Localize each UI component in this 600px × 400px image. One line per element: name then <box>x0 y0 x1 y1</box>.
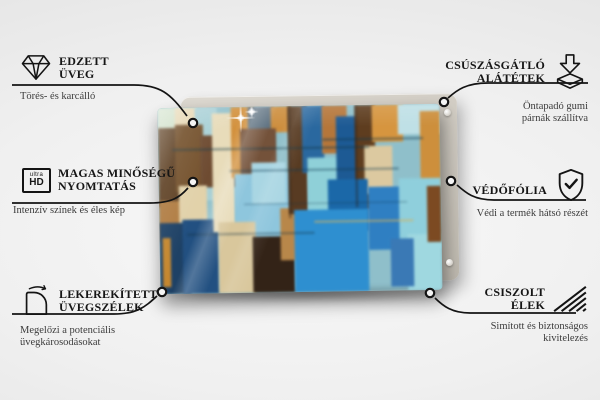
glass-panel <box>158 104 443 294</box>
polished-edges-icon <box>552 285 588 313</box>
callout-title: CSISZOLT ÉLEK <box>484 286 545 312</box>
callout-subtext: Simított és biztonságos kivitelezés <box>484 321 588 344</box>
callout-title: LEKEREKÍTETT ÜVEGSZÉLEK <box>59 288 157 314</box>
callout-tempered-glass: EDZETT ÜVEG Törés- és karcálló <box>20 53 109 103</box>
rounded-corners-icon <box>20 285 52 317</box>
shield-check-icon <box>554 168 588 202</box>
callout-title: CSÚSZÁSGÁTLÓ ALÁTÉTEK <box>445 59 545 85</box>
callout-title: EDZETT ÜVEG <box>59 55 109 81</box>
callout-title: VÉDŐFÓLIA <box>473 184 547 197</box>
glass-reflection <box>158 104 443 294</box>
diamond-icon <box>20 53 52 82</box>
anti-slip-pads-icon <box>552 53 588 91</box>
callout-subtext: Öntapadó gumi párnák szállítva <box>445 101 588 124</box>
product-image <box>150 90 460 302</box>
callout-protective-film: VÉDŐFÓLIA Védi a termék hátsó részét <box>473 168 588 220</box>
callout-subtext: Megelőzi a potenciális üvegkárosodásokat <box>20 325 157 348</box>
callout-anti-slip-pads: CSÚSZÁSGÁTLÓ ALÁTÉTEK Öntapadó gumi párn… <box>445 53 588 124</box>
callout-title: MAGAS MINŐSÉGŰ NYOMTATÁS <box>58 167 175 193</box>
callout-rounded-glass-edges: LEKEREKÍTETT ÜVEGSZÉLEK Megelőzi a poten… <box>20 285 157 348</box>
callout-polished-edges: CSISZOLT ÉLEK Simított és biztonságos ki… <box>484 285 588 344</box>
callout-subtext: Törés- és karcálló <box>20 91 109 103</box>
ultra-hd-icon: ultra HD <box>22 168 51 193</box>
sparkle-glint-small <box>245 105 259 119</box>
product-infographic: { "page": { "background_center": "#f8f8f… <box>0 0 600 400</box>
mounting-pin-bottom <box>446 259 453 266</box>
callout-subtext: Intenzív színek és éles kép <box>13 205 175 217</box>
callout-high-quality-print: ultra HD MAGAS MINŐSÉGŰ NYOMTATÁS Intenz… <box>20 167 175 217</box>
callout-subtext: Védi a termék hátsó részét <box>473 208 588 220</box>
